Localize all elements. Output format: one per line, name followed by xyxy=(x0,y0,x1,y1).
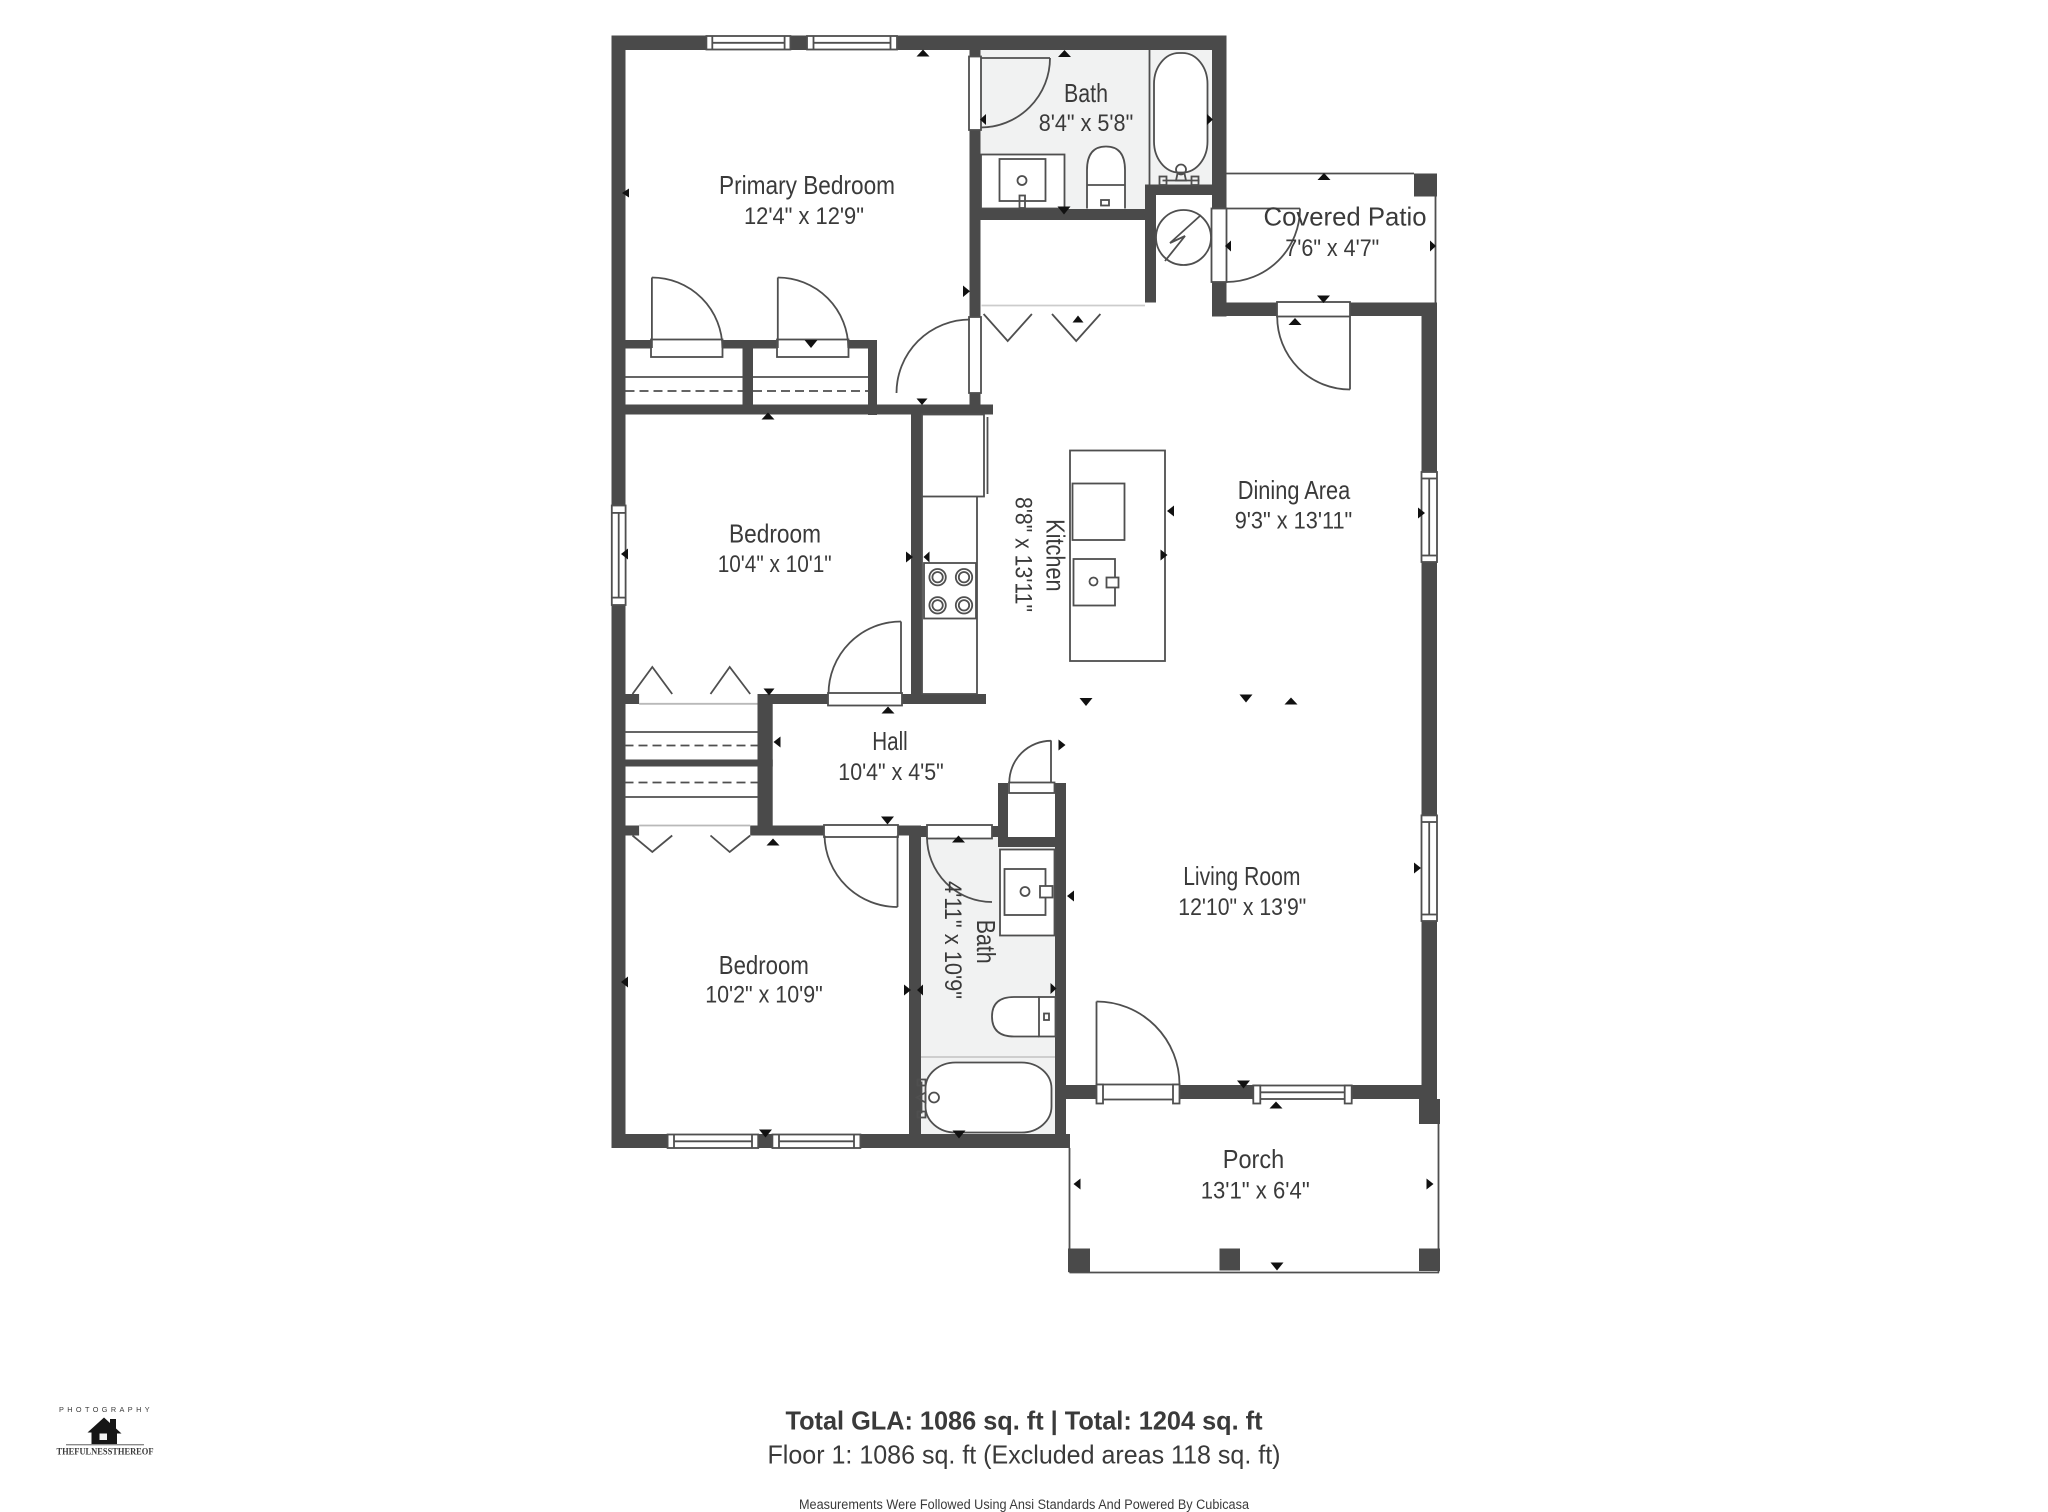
svg-text:9'3" x 13'11": 9'3" x 13'11" xyxy=(1235,507,1353,534)
svg-text:Bedroom: Bedroom xyxy=(729,519,821,549)
svg-text:Covered Patio: Covered Patio xyxy=(1264,202,1427,232)
svg-text:4'11" x 10'9": 4'11" x 10'9" xyxy=(939,881,966,999)
svg-text:12'10" x 13'9": 12'10" x 13'9" xyxy=(1178,894,1306,921)
svg-text:10'2" x 10'9": 10'2" x 10'9" xyxy=(705,981,823,1008)
svg-text:Living Room: Living Room xyxy=(1183,861,1300,891)
svg-text:10'4" x 4'5": 10'4" x 4'5" xyxy=(838,759,943,786)
svg-text:Hall: Hall xyxy=(872,726,908,756)
svg-text:Primary Bedroom: Primary Bedroom xyxy=(719,170,895,200)
svg-text:12'4" x 12'9": 12'4" x 12'9" xyxy=(744,203,864,230)
svg-text:Bath: Bath xyxy=(1064,78,1108,108)
svg-text:THEFULNESSTHEREOF: THEFULNESSTHEREOF xyxy=(57,1447,154,1458)
svg-text:Porch: Porch xyxy=(1223,1144,1285,1174)
svg-text:8'8" x 13'11": 8'8" x 13'11" xyxy=(1010,497,1037,612)
svg-text:8'4" x 5'8": 8'4" x 5'8" xyxy=(1039,110,1134,137)
svg-text:Bedroom: Bedroom xyxy=(719,950,809,980)
svg-text:Measurements Were Followed Usi: Measurements Were Followed Using Ansi St… xyxy=(799,1497,1249,1512)
svg-text:Total GLA: 1086 sq. ft | Total: Total GLA: 1086 sq. ft | Total: 1204 sq.… xyxy=(786,1406,1263,1436)
svg-text:10'4" x 10'1": 10'4" x 10'1" xyxy=(718,551,832,578)
svg-text:13'1" x 6'4": 13'1" x 6'4" xyxy=(1201,1177,1310,1204)
svg-text:PHOTOGRAPHY: PHOTOGRAPHY xyxy=(59,1405,153,1414)
svg-text:Floor 1: 1086 sq. ft (Excluded: Floor 1: 1086 sq. ft (Excluded areas 118… xyxy=(768,1440,1281,1470)
svg-text:Bath: Bath xyxy=(971,920,1001,964)
svg-text:Dining Area: Dining Area xyxy=(1238,475,1351,505)
svg-text:Kitchen: Kitchen xyxy=(1041,519,1071,592)
svg-text:7'6" x 4'7": 7'6" x 4'7" xyxy=(1285,235,1379,262)
